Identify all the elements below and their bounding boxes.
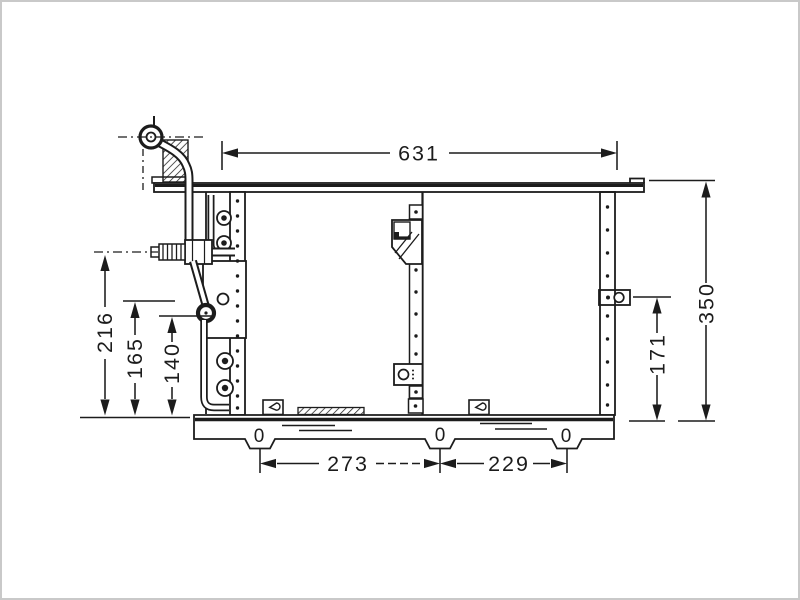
dim-label-216: 216 [93,311,117,353]
service-port-fitting [151,240,212,264]
dim-label-229: 229 [488,452,530,476]
center-divider [392,192,423,415]
fin-strip [298,408,364,415]
dim-label-631: 631 [398,142,440,166]
right-side-rail [599,192,630,415]
dim-label-350: 350 [695,282,719,324]
left-tank-and-rail [203,192,246,415]
datum-mark-center: 0 [435,425,446,446]
bottom-rail: 0 0 0 [194,415,614,449]
retainer-clips [263,400,489,415]
dim-label-140: 140 [160,342,184,384]
dim-label-165: 165 [123,337,147,379]
dimension-top-width: 631 [222,141,617,170]
dimension-overall-height: 350 [649,181,719,422]
right-rail-holes [606,205,609,406]
datum-mark-left: 0 [254,426,265,447]
dimension-right-mount-height: 171 [629,297,671,421]
top-header-bar [152,177,644,192]
technical-drawing-page: 0 0 0 631 350 171 [0,0,800,600]
dim-label-273: 273 [327,452,369,476]
datum-mark-right: 0 [561,426,572,447]
bracket-hole [614,293,624,303]
condenser-technical-drawing: 0 0 0 631 350 171 [2,2,800,600]
dim-label-171: 171 [646,333,670,375]
mount-hole [218,294,229,305]
dimension-bottom-spans: 273 229 [260,449,567,476]
